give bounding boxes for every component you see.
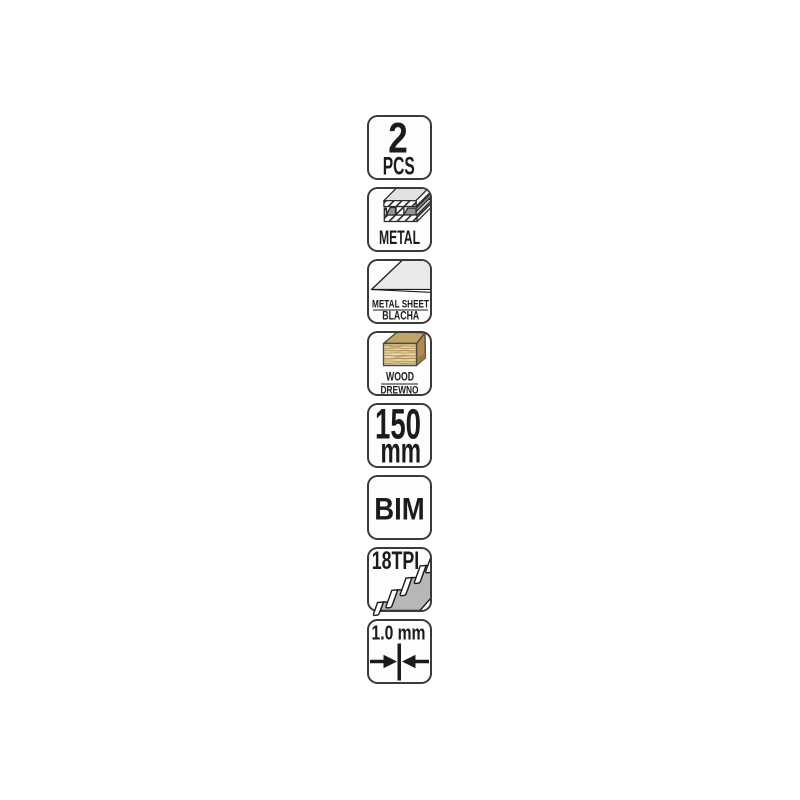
svg-text:DREWNO: DREWNO: [381, 385, 419, 397]
svg-text:BLACHA: BLACHA: [382, 309, 419, 322]
svg-text:PCS: PCS: [383, 153, 415, 181]
svg-text:METAL: METAL: [379, 227, 420, 249]
svg-text:18TPI: 18TPI: [372, 548, 420, 575]
svg-text:1.0 mm: 1.0 mm: [372, 623, 426, 645]
svg-text:mm: mm: [381, 432, 422, 471]
svg-text:WOOD: WOOD: [386, 371, 414, 384]
svg-text:BIM: BIM: [374, 492, 425, 527]
